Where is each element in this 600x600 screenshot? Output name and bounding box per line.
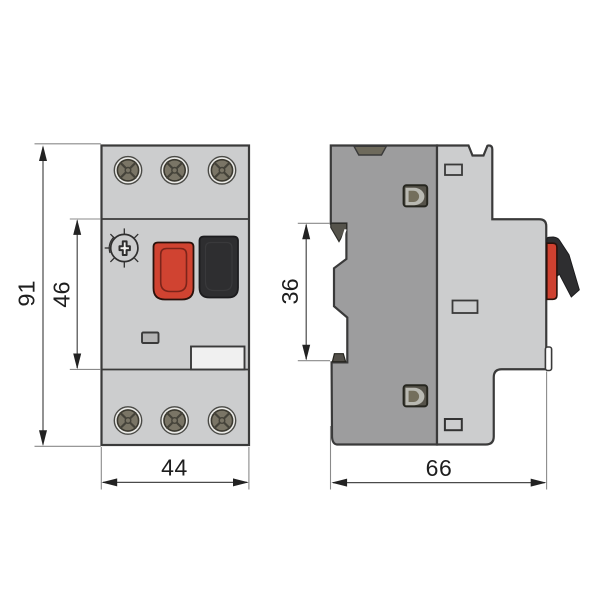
svg-text:36: 36 — [277, 278, 303, 304]
svg-text:46: 46 — [48, 281, 74, 307]
svg-text:44: 44 — [161, 455, 188, 481]
svg-text:91: 91 — [13, 280, 39, 306]
svg-text:66: 66 — [426, 455, 453, 481]
